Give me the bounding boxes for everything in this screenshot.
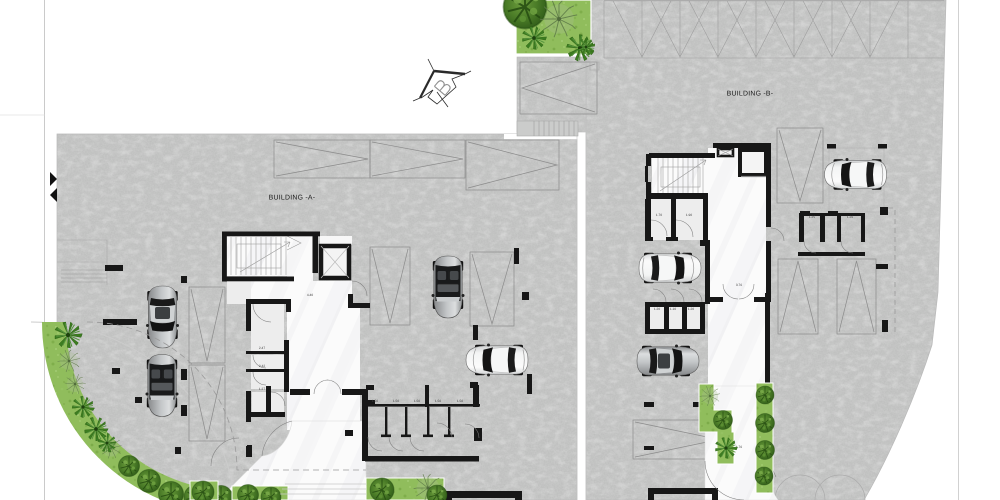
svg-text:1.10: 1.10 bbox=[670, 307, 676, 311]
svg-text:1.70: 1.70 bbox=[656, 213, 662, 217]
svg-text:BUILDING -A-: BUILDING -A- bbox=[269, 195, 316, 202]
svg-text:2.47: 2.47 bbox=[259, 346, 265, 350]
svg-text:1.50: 1.50 bbox=[393, 399, 399, 403]
svg-text:4.40: 4.40 bbox=[307, 293, 313, 297]
svg-text:1.20: 1.20 bbox=[654, 307, 660, 311]
svg-text:1.50: 1.50 bbox=[372, 399, 378, 403]
svg-text:1.50: 1.50 bbox=[435, 399, 441, 403]
svg-text:1.26: 1.26 bbox=[847, 215, 853, 219]
svg-text:1.20: 1.20 bbox=[688, 307, 694, 311]
svg-text:BUILDING -B-: BUILDING -B- bbox=[727, 91, 774, 98]
svg-text:1.50: 1.50 bbox=[457, 399, 463, 403]
svg-text:1.50: 1.50 bbox=[414, 399, 420, 403]
svg-text:2.42: 2.42 bbox=[259, 364, 265, 368]
svg-text:3.76: 3.76 bbox=[736, 283, 742, 287]
svg-text:1.90: 1.90 bbox=[686, 213, 692, 217]
svg-text:1.27: 1.27 bbox=[259, 387, 265, 391]
svg-text:1.25: 1.25 bbox=[809, 215, 815, 219]
